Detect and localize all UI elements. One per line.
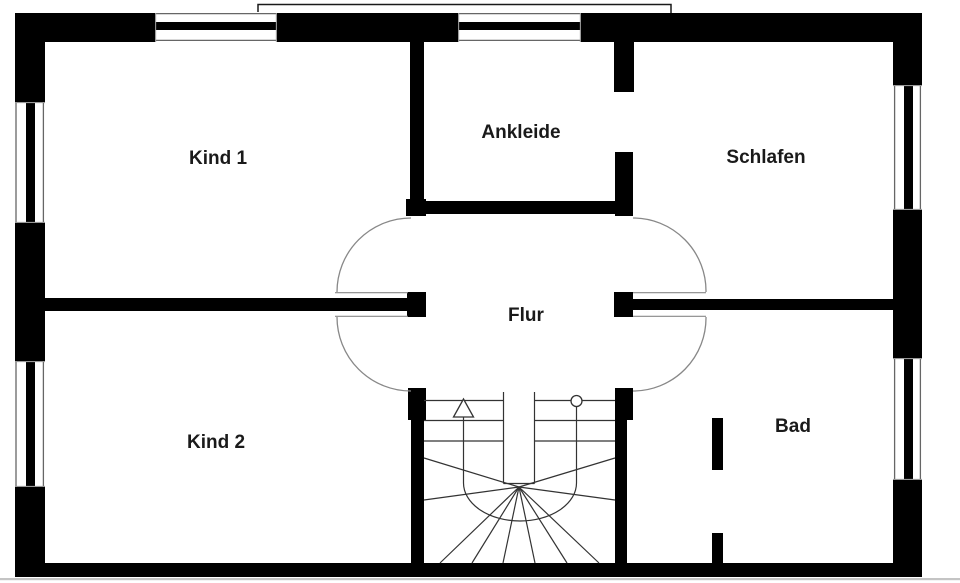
window-top-2 (458, 12, 581, 42)
wall-ankleide-right-upper (614, 42, 634, 92)
window-right-upper (893, 85, 923, 210)
floor-plan: Kind 1 Ankleide Schlafen Flur Kind 2 Bad (0, 0, 960, 583)
bottom-shadow-line (0, 578, 960, 580)
room-label-schlafen: Schlafen (726, 147, 805, 168)
stair-up-arrow-icon (454, 399, 474, 417)
bad-partition-lower (712, 533, 723, 563)
stair-spine (504, 392, 535, 484)
wall-bottom (15, 563, 922, 577)
wall-ankleide-flur (410, 201, 633, 214)
window-top-1 (155, 12, 277, 42)
stair-winders (424, 458, 615, 563)
wall-kind1-ankleide (410, 42, 424, 202)
stairwell-wall-right-cap (615, 388, 633, 420)
window-left-lower (14, 361, 45, 487)
window-left-upper (14, 102, 45, 223)
door-arc-top-left (337, 218, 411, 292)
room-label-kind2: Kind 2 (187, 432, 245, 453)
bad-partition-upper (712, 418, 723, 470)
stairwell-wall-right (615, 420, 627, 563)
stair-start-circle-icon (571, 396, 582, 407)
wall-left (15, 13, 45, 577)
wall-schlafen-bad (633, 299, 893, 310)
door-arc-top-right (633, 218, 706, 292)
room-labels: Kind 1 Ankleide Schlafen Flur Kind 2 Bad (187, 122, 811, 453)
door-arc-bottom-left (337, 317, 411, 391)
room-label-kind1: Kind 1 (189, 148, 247, 169)
wall-schlafen-bad-cap (614, 292, 633, 317)
wall-kind1-kind2-cap (407, 292, 426, 317)
stair-treads (424, 401, 615, 442)
door-arc-bottom-right (633, 317, 706, 391)
interior-walls (45, 42, 893, 563)
room-label-flur: Flur (508, 305, 544, 326)
outer-walls (15, 13, 922, 577)
wall-kind1-kind2 (45, 298, 410, 311)
dormer-outline (258, 5, 671, 14)
wall-ankleide-right-lower (615, 152, 633, 216)
room-label-ankleide: Ankleide (481, 122, 560, 143)
stairwell-wall-left-cap (408, 388, 426, 420)
stairwell-wall-left (411, 420, 424, 563)
window-right-lower (893, 358, 923, 480)
room-label-bad: Bad (775, 416, 811, 437)
staircase (424, 392, 615, 563)
floor-plan-drawing: Kind 1 Ankleide Schlafen Flur Kind 2 Bad (0, 0, 960, 583)
